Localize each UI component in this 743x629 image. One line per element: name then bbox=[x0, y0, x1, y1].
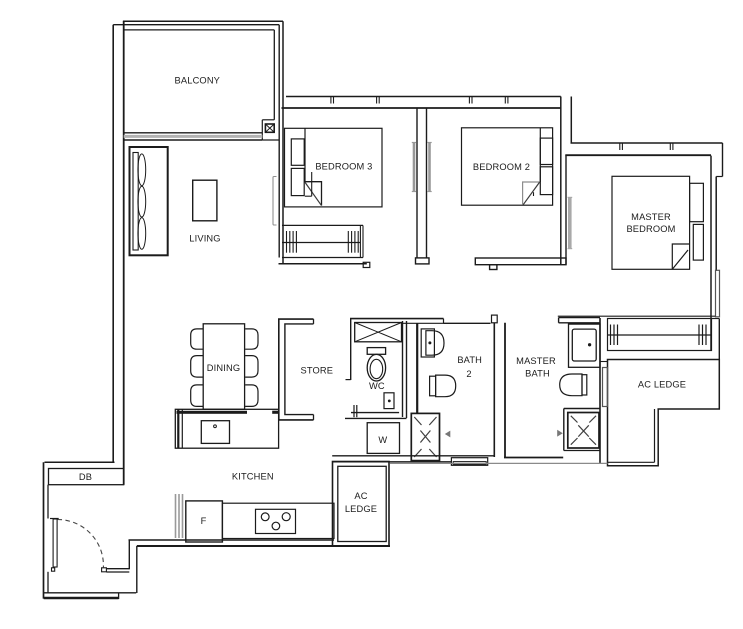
svg-text:W: W bbox=[378, 435, 387, 445]
svg-text:STORE: STORE bbox=[300, 366, 333, 376]
svg-text:BEDROOM 3: BEDROOM 3 bbox=[315, 162, 372, 172]
svg-text:2: 2 bbox=[466, 369, 471, 379]
svg-text:DINING: DINING bbox=[207, 363, 240, 373]
svg-text:BATH: BATH bbox=[457, 355, 482, 365]
svg-text:BALCONY: BALCONY bbox=[175, 76, 220, 86]
svg-text:KITCHEN: KITCHEN bbox=[232, 472, 274, 482]
svg-text:LIVING: LIVING bbox=[189, 233, 220, 243]
svg-text:AC: AC bbox=[354, 491, 367, 501]
svg-text:WC: WC bbox=[369, 381, 385, 391]
svg-text:BATH: BATH bbox=[525, 368, 550, 378]
svg-text:BEDROOM: BEDROOM bbox=[626, 224, 675, 234]
svg-text:DB: DB bbox=[79, 472, 92, 482]
svg-text:MASTER: MASTER bbox=[516, 356, 556, 366]
svg-text:AC LEDGE: AC LEDGE bbox=[638, 380, 686, 390]
svg-text:BEDROOM 2: BEDROOM 2 bbox=[473, 162, 530, 172]
svg-text:LEDGE: LEDGE bbox=[345, 504, 377, 514]
svg-text:F: F bbox=[201, 516, 207, 526]
svg-text:MASTER: MASTER bbox=[631, 212, 671, 222]
